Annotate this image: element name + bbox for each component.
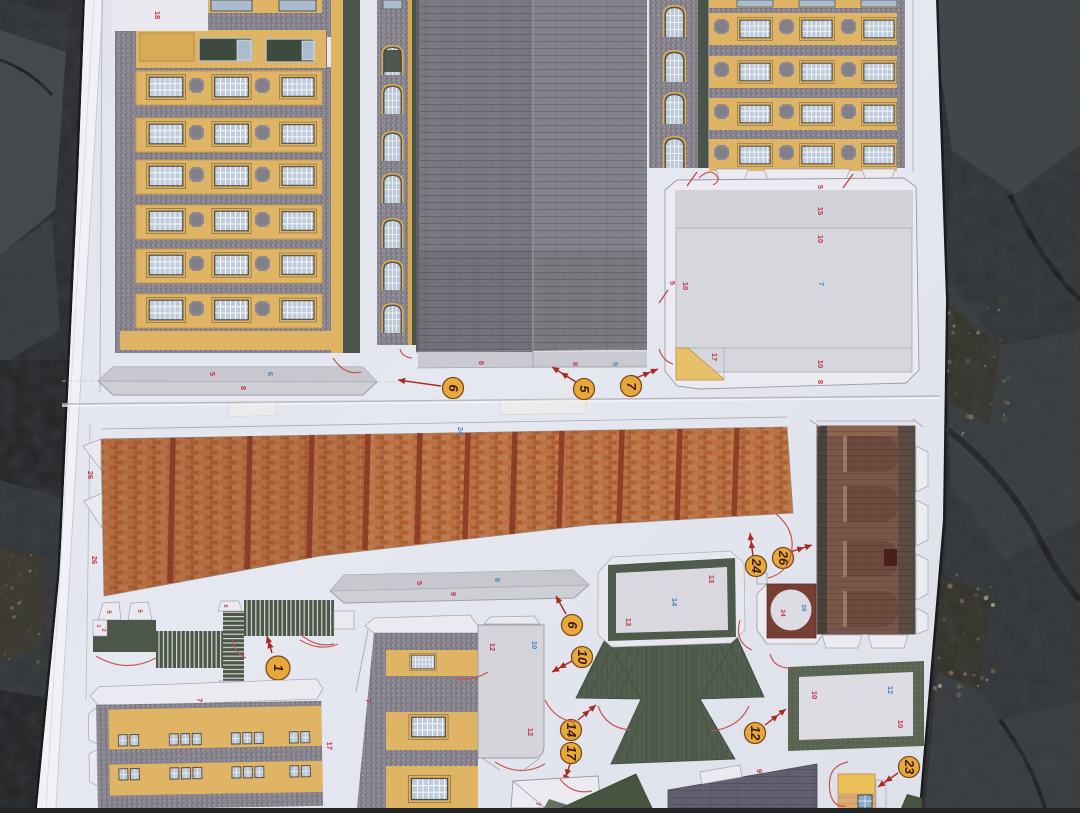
svg-text:8: 8 [239,386,248,390]
svg-text:1: 1 [95,624,101,627]
svg-text:6: 6 [446,384,461,392]
svg-text:7: 7 [195,698,204,702]
svg-text:10: 10 [896,720,905,728]
svg-text:14: 14 [670,598,679,607]
svg-text:8: 8 [816,380,825,384]
svg-text:12: 12 [488,643,497,651]
svg-text:6: 6 [266,372,275,376]
svg-text:7: 7 [817,282,826,286]
svg-text:24: 24 [779,609,786,617]
svg-text:15: 15 [816,207,825,215]
svg-text:26: 26 [776,550,791,566]
svg-text:6: 6 [565,621,580,629]
svg-text:10: 10 [681,282,690,290]
svg-text:12: 12 [748,726,763,741]
svg-text:5: 5 [668,281,677,285]
svg-text:5: 5 [577,385,592,393]
svg-text:10: 10 [575,650,590,665]
svg-text:24: 24 [749,558,764,574]
svg-text:5: 5 [816,185,825,189]
svg-text:10: 10 [816,235,825,243]
svg-text:7: 7 [624,382,639,390]
svg-text:2: 2 [100,628,106,631]
svg-text:17: 17 [564,746,579,761]
svg-text:26: 26 [86,471,95,479]
svg-text:13: 13 [624,618,633,626]
svg-text:8: 8 [477,361,486,365]
svg-text:7: 7 [364,699,373,703]
svg-text:5: 5 [222,604,228,607]
svg-text:9: 9 [449,592,458,596]
svg-text:24: 24 [456,427,465,436]
svg-text:12: 12 [886,686,895,694]
svg-text:7: 7 [534,802,541,806]
svg-text:18: 18 [153,11,162,19]
svg-text:10: 10 [816,360,825,368]
svg-text:9: 9 [755,769,764,773]
svg-text:1: 1 [271,664,286,671]
svg-text:5: 5 [415,581,424,585]
svg-text:5: 5 [611,362,620,366]
svg-text:13: 13 [707,575,716,583]
svg-text:14: 14 [564,723,579,738]
svg-text:17: 17 [710,353,719,361]
svg-text:26: 26 [90,556,99,564]
svg-text:6: 6 [493,578,502,582]
svg-text:10: 10 [810,691,819,699]
svg-text:10: 10 [530,641,539,649]
svg-text:12: 12 [526,728,535,736]
svg-text:17: 17 [325,741,334,749]
svg-text:26: 26 [800,604,807,612]
svg-text:23: 23 [902,759,917,775]
svg-text:5: 5 [208,372,217,376]
svg-text:8: 8 [571,362,580,366]
